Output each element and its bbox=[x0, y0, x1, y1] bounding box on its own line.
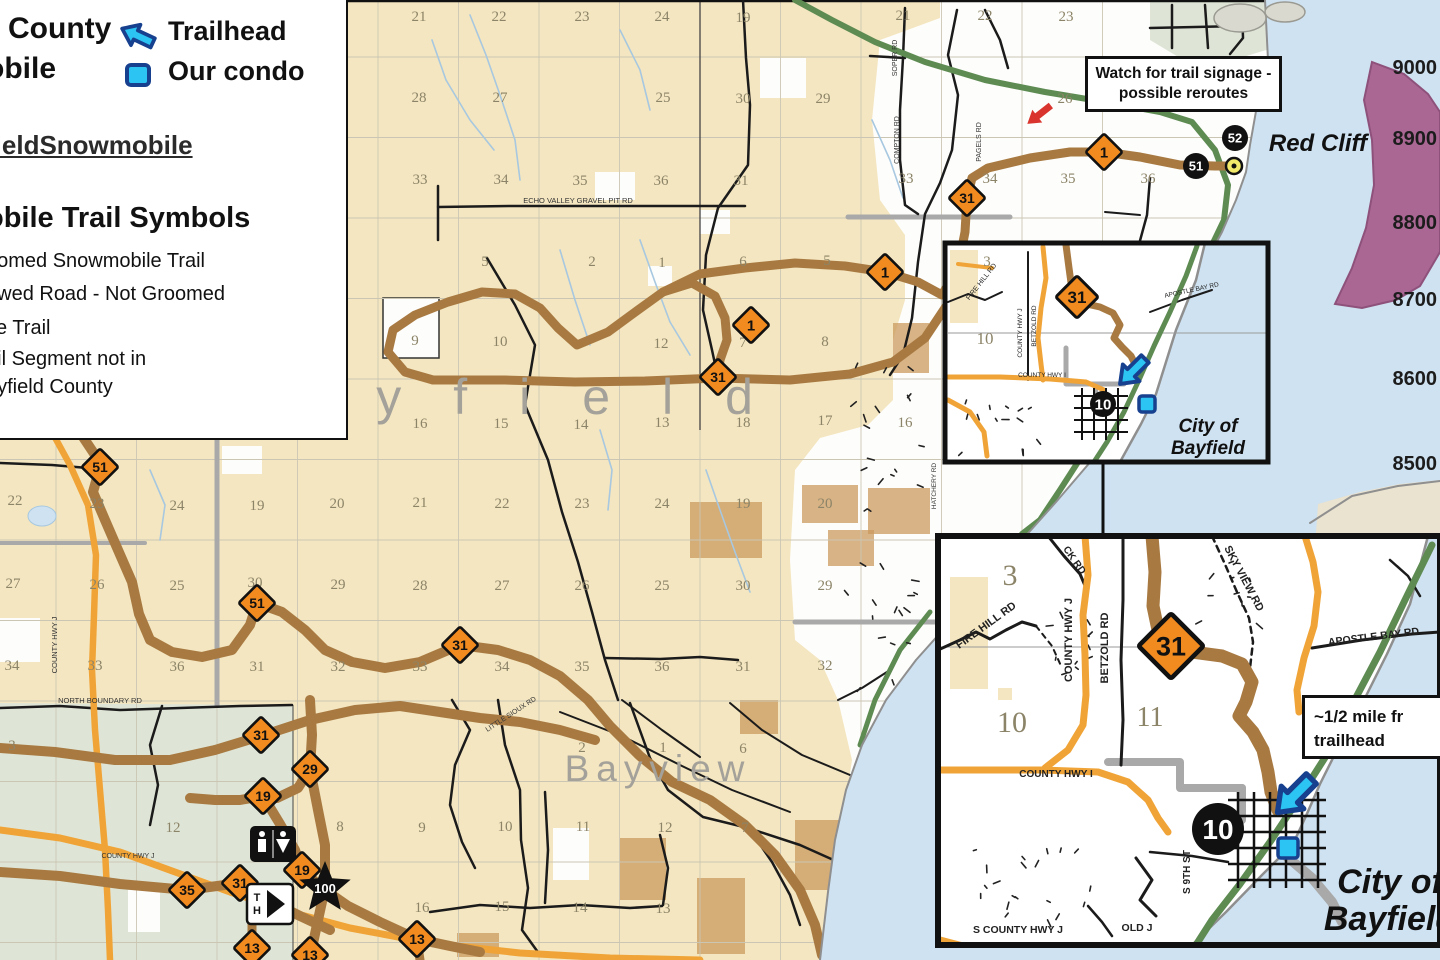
section-number: 24 bbox=[655, 9, 671, 25]
white-patch bbox=[222, 446, 262, 474]
dash bbox=[1046, 625, 1053, 626]
map-page: 9000890088008700860085002122232419212223… bbox=[0, 0, 1440, 960]
section-number: 23 bbox=[575, 9, 590, 25]
road-label: COUNTY HWY J bbox=[101, 853, 154, 860]
condo-square-icon bbox=[122, 60, 154, 92]
section-number: 27 bbox=[493, 90, 509, 106]
inset-road-label: COUNTY HWY I bbox=[1018, 372, 1066, 379]
trailhead-arrow-icon bbox=[118, 16, 158, 56]
diamond-number: 31 bbox=[710, 369, 726, 385]
section-number: 33 bbox=[899, 171, 914, 187]
coord-label: 8800 bbox=[1393, 212, 1438, 234]
diamond-number: 1 bbox=[747, 317, 755, 334]
section-number: 30 bbox=[736, 91, 751, 107]
legend-item-bike: ke Trail bbox=[0, 317, 50, 340]
area-label: Bayview bbox=[565, 748, 752, 789]
coord-label: 8900 bbox=[1393, 128, 1438, 150]
section-number: 21 bbox=[413, 495, 428, 511]
th-letter: T bbox=[254, 892, 261, 904]
condo-square-marker bbox=[1139, 396, 1155, 412]
diamond-number: 31 bbox=[959, 190, 975, 206]
coord-label: 8700 bbox=[1393, 289, 1438, 311]
circle-number: 10 bbox=[1095, 396, 1112, 413]
section-number: 12 bbox=[166, 820, 181, 836]
road-label: NORTH BOUNDARY RD bbox=[58, 696, 142, 705]
dash bbox=[1047, 849, 1048, 854]
section-number: 9 bbox=[418, 820, 426, 836]
inset-road-label: COUNTY HWY J bbox=[1017, 308, 1024, 357]
shore-blob bbox=[1265, 2, 1305, 22]
section-number: 36 bbox=[1141, 171, 1157, 187]
trailhead-dot-marker bbox=[1226, 158, 1242, 174]
watch-signage-callout: Watch for trail signage - possible rerou… bbox=[1085, 56, 1282, 112]
circle-number: 52 bbox=[1228, 131, 1242, 146]
legend-condo-label: Our condo bbox=[168, 56, 305, 87]
section-number: 11 bbox=[576, 819, 590, 835]
road-label: ECHO VALLEY GRAVEL PIT RD bbox=[523, 196, 633, 205]
section-number: 33 bbox=[413, 659, 428, 675]
section-number: 15 bbox=[495, 899, 510, 915]
coord-label: 8500 bbox=[1393, 453, 1438, 475]
section-number: 5 bbox=[481, 254, 489, 270]
coord-label: 8600 bbox=[1393, 368, 1438, 390]
section-number: 26 bbox=[1058, 91, 1074, 107]
section-number: 33 bbox=[413, 172, 428, 188]
inset-road-label: S 9TH ST bbox=[1182, 850, 1193, 894]
city-of-bayfield-label: Bayfield bbox=[1324, 900, 1440, 938]
dot-center bbox=[1232, 164, 1237, 169]
legend-title-line2: obile bbox=[0, 52, 56, 86]
dash bbox=[1060, 848, 1061, 852]
white-patch bbox=[553, 828, 589, 880]
diamond-number: 31 bbox=[1068, 288, 1087, 307]
road-label: COMPTON RD bbox=[894, 116, 901, 164]
section-number: 9 bbox=[411, 333, 419, 349]
inset-section-number: 11 bbox=[1137, 702, 1164, 733]
section-number: 19 bbox=[250, 498, 265, 514]
section-number: 23 bbox=[90, 496, 105, 512]
inset-road-label: S COUNTY HWY J bbox=[973, 924, 1063, 936]
diamond-number: 1 bbox=[881, 264, 889, 281]
lake bbox=[28, 506, 56, 526]
section-number: 26 bbox=[575, 578, 591, 594]
section-number: 35 bbox=[573, 173, 588, 189]
road-marker-circle-10: 10 bbox=[1090, 391, 1116, 417]
section-number: 21 bbox=[896, 8, 911, 24]
diamond-number: 31 bbox=[232, 875, 248, 891]
watch-line2: possible reroutes bbox=[1119, 84, 1248, 104]
city-of-bayfield-label: City of bbox=[1178, 416, 1239, 437]
section-number: 2 bbox=[588, 254, 596, 270]
brown-land-patch bbox=[620, 838, 666, 900]
section-number: 7 bbox=[741, 820, 749, 836]
road-marker-circle-52: 52 bbox=[1222, 125, 1248, 151]
section-number: 31 bbox=[736, 659, 751, 675]
inset-road-label: BETZOLD RD bbox=[1099, 613, 1111, 684]
restroom-icon bbox=[250, 826, 296, 862]
section-number: 22 bbox=[495, 496, 510, 512]
dash bbox=[1090, 886, 1091, 891]
section-number: 20 bbox=[330, 496, 345, 512]
black-road bbox=[438, 206, 745, 207]
section-number: 10 bbox=[493, 334, 508, 350]
section-number: 25 bbox=[170, 578, 185, 594]
city-of-bayfield-label: Bayfield bbox=[1171, 438, 1245, 459]
inset-section-number: 10 bbox=[977, 329, 994, 348]
road-label: SOPER RD bbox=[892, 40, 899, 77]
section-number: 13 bbox=[656, 901, 671, 917]
road-label: HATCHERY RD bbox=[931, 463, 938, 510]
section-number: 3 bbox=[8, 738, 16, 754]
brown-land-patch bbox=[690, 502, 762, 558]
section-number: 24 bbox=[655, 496, 671, 512]
section-number: 36 bbox=[170, 659, 186, 675]
inset-tan-patch bbox=[998, 688, 1012, 700]
section-number: 22 bbox=[978, 8, 993, 24]
section-number: 16 bbox=[898, 415, 914, 431]
brown-land-patch bbox=[868, 488, 930, 534]
diamond-number: 19 bbox=[255, 788, 271, 804]
section-number: 17 bbox=[818, 413, 834, 429]
legend-trailhead-label: Trailhead bbox=[168, 16, 287, 47]
black-road bbox=[605, 657, 738, 660]
circle-number: 51 bbox=[1189, 159, 1203, 174]
section-number: 35 bbox=[1061, 171, 1076, 187]
brown-land-patch bbox=[828, 530, 874, 566]
section-number: 35 bbox=[575, 659, 590, 675]
section-number: 21 bbox=[412, 9, 427, 25]
inset-section-number: 10 bbox=[997, 706, 1027, 739]
inset-road-label: OLD J bbox=[1122, 922, 1153, 934]
white-patch bbox=[128, 890, 160, 932]
diamond-number: 31 bbox=[253, 727, 269, 743]
section-number: 22 bbox=[492, 9, 507, 25]
legend-link[interactable]: fieldSnowmobile bbox=[0, 130, 193, 161]
coord-label: 9000 bbox=[1393, 57, 1438, 79]
half-mile-callout: ~1/2 mile fr trailhead bbox=[1302, 695, 1440, 759]
figure-head bbox=[259, 831, 265, 837]
section-number: 36 bbox=[654, 173, 670, 189]
section-number: 36 bbox=[655, 659, 671, 675]
legend-symbols-heading: obile Trail Symbols bbox=[0, 202, 250, 235]
inset-small: 310FIRE HILL RDCOUNTY HWY JBETZOLD RDCOU… bbox=[945, 243, 1268, 462]
section-number: 34 bbox=[494, 172, 510, 188]
section-number: 5 bbox=[823, 253, 831, 269]
shore-blob bbox=[1214, 4, 1266, 32]
section-number: 28 bbox=[413, 578, 428, 594]
figure-body bbox=[258, 839, 266, 852]
section-number: 12 bbox=[654, 336, 669, 352]
road-label: PAGELS RD bbox=[976, 122, 983, 162]
inset-section-number: 3 bbox=[1003, 559, 1018, 592]
section-number: 29 bbox=[331, 577, 346, 593]
diamond-number: 13 bbox=[302, 947, 318, 960]
diamond-number: 51 bbox=[249, 595, 265, 611]
section-number: 23 bbox=[575, 496, 590, 512]
road-marker-circle-51: 51 bbox=[1183, 153, 1209, 179]
dash bbox=[989, 405, 990, 409]
section-number: 10 bbox=[498, 819, 513, 835]
section-number: 8 bbox=[336, 819, 344, 835]
watch-line1: Watch for trail signage - bbox=[1096, 64, 1272, 84]
inset-road-label: COUNTY HWY I bbox=[1019, 769, 1093, 780]
dash bbox=[1022, 449, 1023, 455]
white-patch bbox=[760, 58, 806, 98]
section-number: 34 bbox=[5, 658, 21, 674]
legend-box: County obile Trailhead Our condo fieldSn… bbox=[0, 0, 348, 440]
white-patch bbox=[0, 618, 40, 662]
section-number: 34 bbox=[495, 659, 511, 675]
section-number: 26 bbox=[90, 577, 106, 593]
diamond-number: 29 bbox=[302, 761, 318, 777]
city-of-bayfield-label: City of bbox=[1337, 863, 1440, 901]
section-number: 32 bbox=[818, 658, 833, 674]
section-number: 28 bbox=[412, 90, 427, 106]
diamond-number: 35 bbox=[179, 882, 195, 898]
section-number: 20 bbox=[818, 496, 833, 512]
legend-item-segment-line2: ayfield County bbox=[0, 376, 113, 399]
section-number: 25 bbox=[656, 90, 671, 106]
section-number: 1 bbox=[658, 255, 666, 271]
section-number: 30 bbox=[736, 578, 751, 594]
section-number: 31 bbox=[734, 173, 749, 189]
condo-square-marker bbox=[1278, 838, 1298, 858]
legend-item-segment-line1: ail Segment not in bbox=[0, 348, 146, 371]
section-number: 16 bbox=[415, 900, 431, 916]
diamond-number: 13 bbox=[409, 931, 425, 947]
dash bbox=[973, 850, 976, 851]
trailhead-sign-icon: TH bbox=[247, 884, 293, 924]
section-number: 22 bbox=[8, 493, 23, 509]
section-number: 14 bbox=[573, 900, 589, 916]
road-label: COUNTY HWY J bbox=[50, 616, 59, 673]
star-number: 100 bbox=[314, 881, 336, 896]
legend-item-plowed: owed Road - Not Groomed bbox=[0, 283, 225, 306]
legend-item-groomed: oomed Snowmobile Trail bbox=[0, 250, 205, 273]
diamond-number: 51 bbox=[92, 459, 108, 475]
diamond-number: 31 bbox=[452, 637, 468, 653]
section-number: 29 bbox=[818, 578, 833, 594]
section-number: 31 bbox=[250, 659, 265, 675]
section-number: 19 bbox=[736, 496, 751, 512]
figure-head bbox=[280, 831, 286, 837]
diamond-number: 19 bbox=[294, 862, 310, 878]
section-number: 27 bbox=[495, 578, 511, 594]
diamond-number: 31 bbox=[1156, 632, 1186, 662]
section-number: 24 bbox=[170, 498, 186, 514]
section-number: 8 bbox=[821, 334, 829, 350]
inset-road-label: COUNTY HWY J bbox=[1063, 598, 1075, 682]
dash bbox=[1055, 657, 1056, 660]
section-number: 23 bbox=[1059, 9, 1074, 25]
section-number: 32 bbox=[331, 659, 346, 675]
road-marker-circle-10: 10 bbox=[1192, 803, 1244, 855]
area-label: Red Cliff bbox=[1269, 130, 1369, 157]
dash bbox=[907, 643, 911, 644]
half-line2: trailhead bbox=[1314, 729, 1440, 753]
diamond-number: 13 bbox=[244, 940, 260, 956]
circle-number: 10 bbox=[1202, 814, 1233, 845]
section-number: 12 bbox=[658, 820, 673, 836]
half-line1: ~1/2 mile fr bbox=[1314, 705, 1440, 729]
section-number: 33 bbox=[88, 658, 103, 674]
section-number: 27 bbox=[6, 576, 22, 592]
section-number: 6 bbox=[739, 254, 747, 270]
legend-title-line1: County bbox=[8, 12, 111, 46]
section-number: 34 bbox=[983, 171, 999, 187]
diamond-number: 1 bbox=[1100, 144, 1108, 161]
dash bbox=[879, 637, 886, 638]
section-number: 19 bbox=[736, 10, 751, 26]
section-number: 25 bbox=[655, 578, 670, 594]
inset-brown-road bbox=[1152, 536, 1158, 630]
th-letter: H bbox=[253, 905, 261, 917]
inset-road-label: BETZOLD RD bbox=[1031, 305, 1038, 346]
section-number: 29 bbox=[816, 91, 831, 107]
